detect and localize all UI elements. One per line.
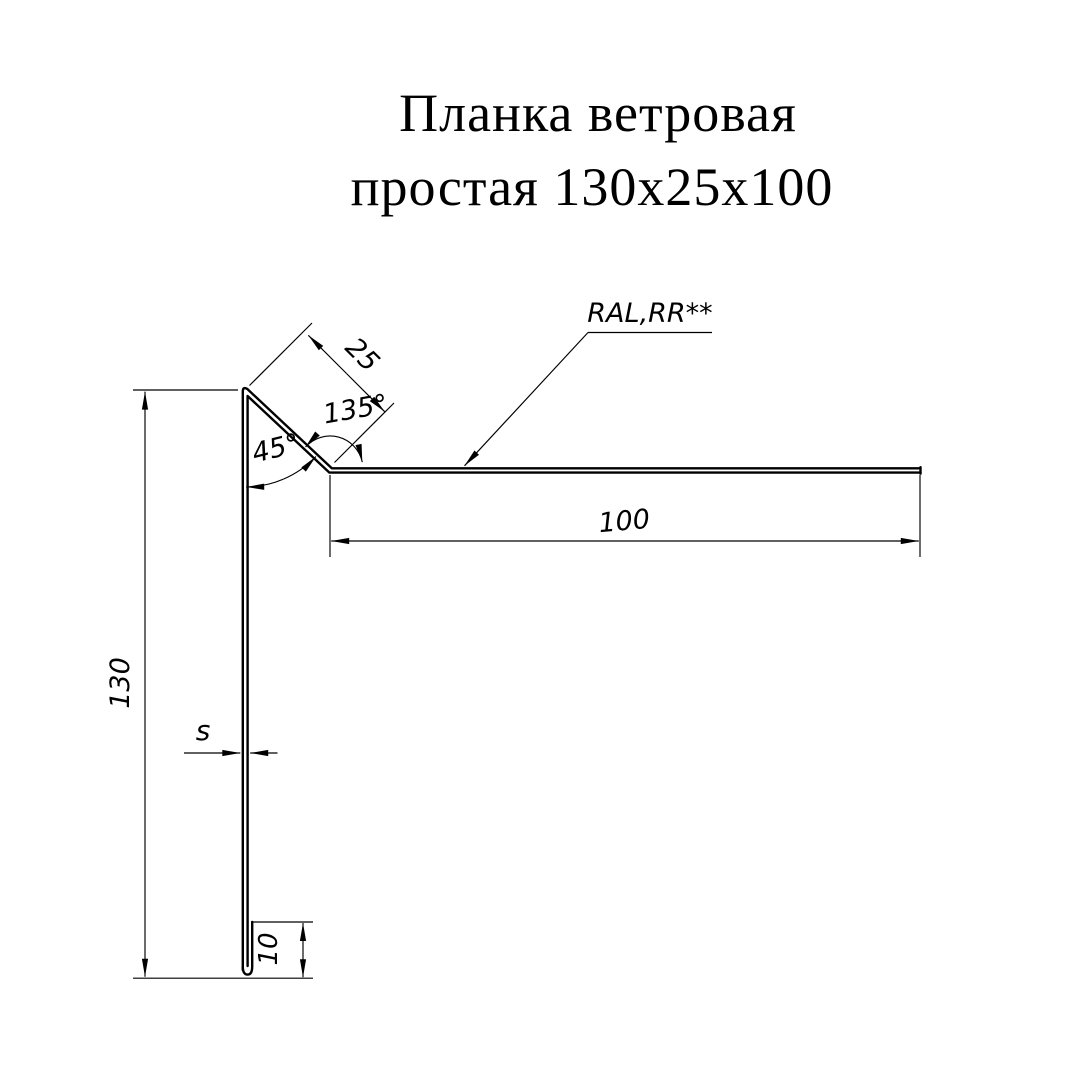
dim-label-10: 10 [254,932,284,965]
profile-outer-contour [243,388,921,970]
profile-outline [243,388,921,975]
leader-line [465,333,589,466]
dim-label-25: 25 [339,332,385,378]
dimension-10: 10 [251,922,313,977]
profile-inner-contour [248,396,921,966]
angle-arc [339,437,363,462]
dim-label-100: 100 [597,504,651,539]
drawing-title-line1: Планка ветровая [399,83,797,143]
dimension-130: 130 [105,390,313,978]
coating-callout: RAL,RR** [465,298,713,466]
technical-drawing: Планка ветровая простая 130х25х100 130 [0,0,1088,1082]
drawing-page: Планка ветровая простая 130х25х100 130 [0,0,1088,1082]
angle-label-45: 45° [249,428,303,470]
angle-arc [306,436,339,447]
coating-label: RAL,RR** [587,298,712,329]
ext-line [250,323,313,386]
drawing-title-line2: простая 130х25х100 [351,157,834,217]
angle-label-135: 135° [321,389,390,431]
angle-135: 135° [306,389,391,462]
thickness-label: s [196,714,211,747]
angle-45: 45° [246,428,316,487]
dimension-thickness: s [184,714,278,753]
angle-arc [246,479,284,487]
dim-label-130: 130 [105,657,136,709]
dimension-100: 100 [330,475,920,557]
